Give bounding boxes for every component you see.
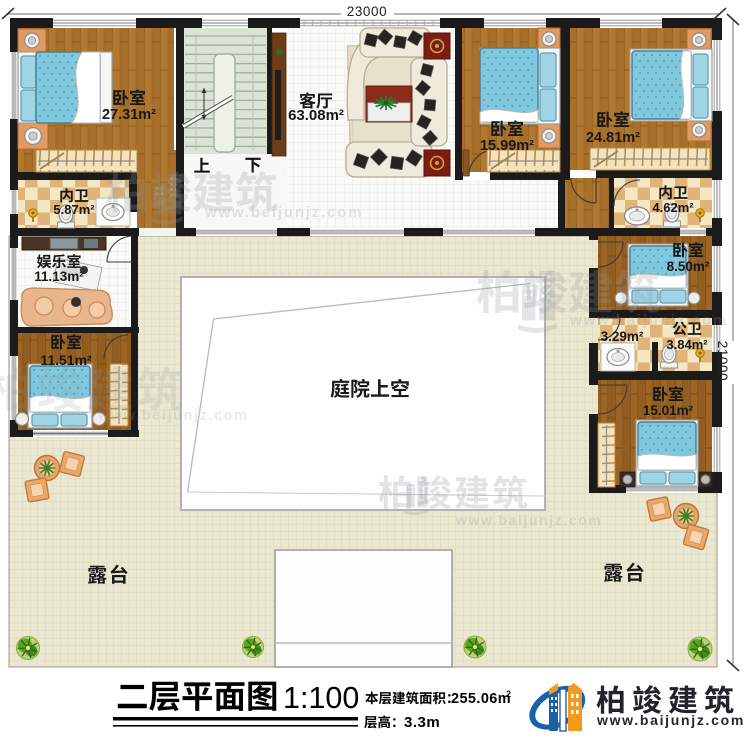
svg-text:63.08m²: 63.08m² (288, 107, 344, 124)
svg-text:www.baijunjz.com: www.baijunjz.com (569, 312, 728, 329)
svg-text:3.84m²: 3.84m² (666, 337, 708, 352)
svg-text:www.baijunjz.com: www.baijunjz.com (596, 712, 745, 728)
svg-text:5.87m²: 5.87m² (53, 202, 95, 217)
svg-text:11.13m²: 11.13m² (34, 269, 84, 284)
svg-text:11.51m²: 11.51m² (40, 352, 92, 368)
svg-text:24.81m²: 24.81m² (586, 130, 640, 146)
svg-text:www.beijunjz.com: www.beijunjz.com (97, 408, 249, 424)
svg-text:21000: 21000 (715, 341, 730, 382)
svg-text:3.3m: 3.3m (404, 714, 440, 731)
svg-text:27.31m²: 27.31m² (102, 107, 156, 123)
svg-text:23000: 23000 (347, 4, 388, 19)
svg-text:15.01m²: 15.01m² (643, 403, 694, 418)
svg-text:1:100: 1:100 (283, 681, 359, 715)
svg-text:www.beijunjz.com: www.beijunjz.com (204, 204, 363, 221)
svg-text:8.50m²: 8.50m² (667, 259, 710, 274)
svg-text:4.62m²: 4.62m² (652, 200, 694, 215)
svg-text:15.99m²: 15.99m² (480, 138, 534, 154)
svg-text:255.06m: 255.06m (451, 691, 511, 707)
svg-text:3.29m²: 3.29m² (601, 329, 644, 344)
svg-text:www.baijunjz.com: www.baijunjz.com (455, 512, 602, 528)
svg-text:2: 2 (506, 689, 511, 699)
